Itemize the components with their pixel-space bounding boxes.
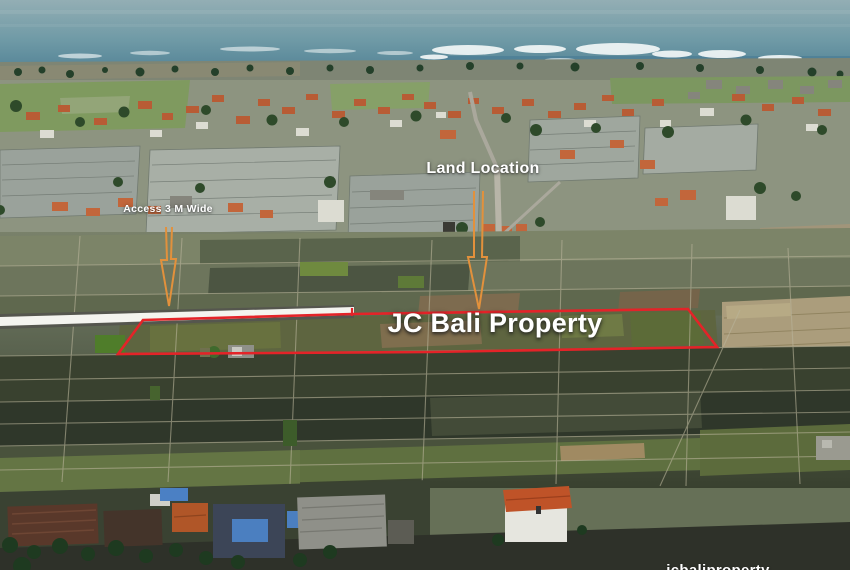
- rice-fields: [0, 228, 850, 492]
- property-name-label: JC Bali Property: [325, 308, 665, 339]
- access-width-label: Access 3 M Wide: [108, 203, 228, 215]
- aerial-photo: Land Location Access 3 M Wide JC Bali Pr…: [0, 0, 850, 570]
- aerial-photo-scene: [0, 0, 850, 570]
- watermark-text: jcbaliproperty: [638, 562, 798, 570]
- land-location-label: Land Location: [408, 160, 558, 178]
